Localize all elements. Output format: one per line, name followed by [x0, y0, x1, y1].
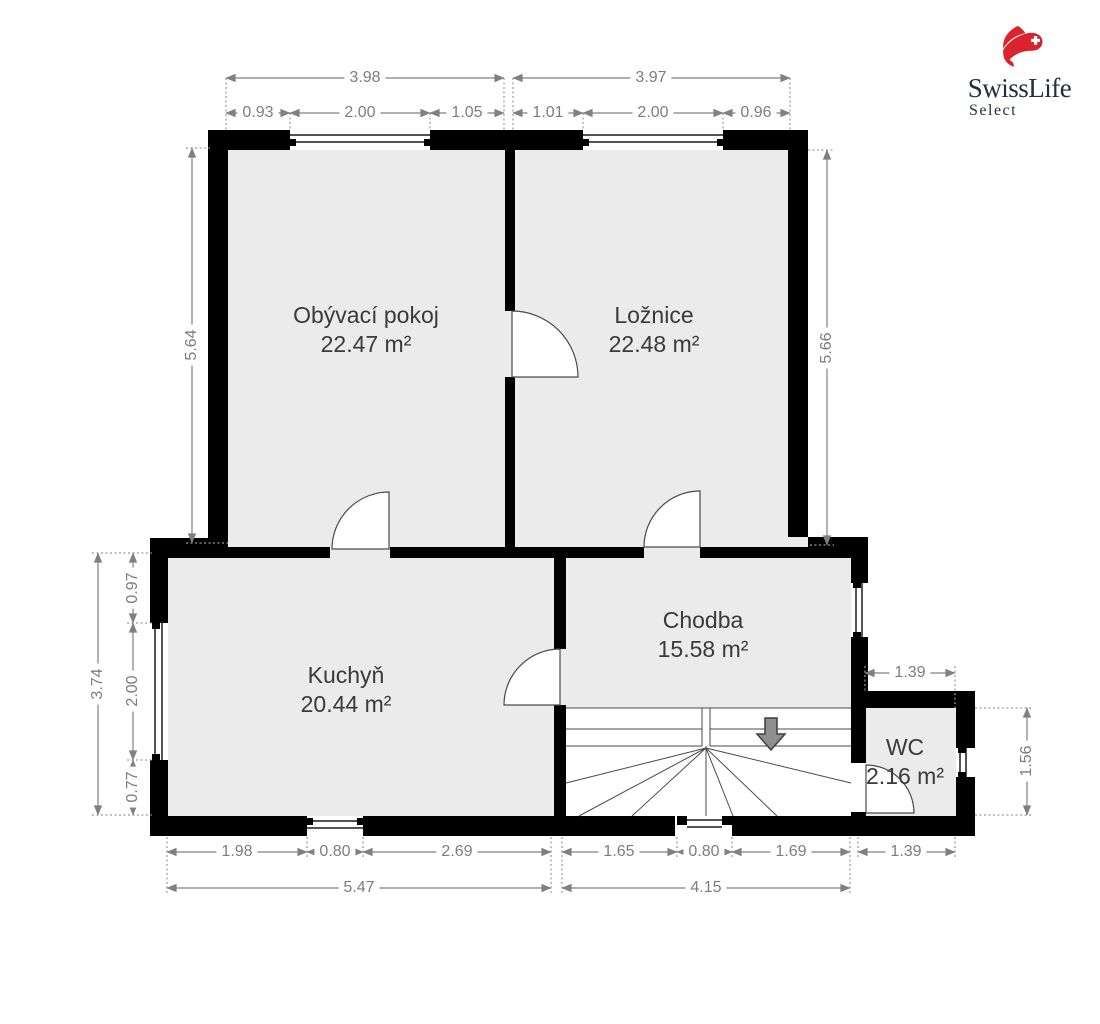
room-name: Kuchyň [301, 661, 392, 690]
room-label-wc: WC 2.16 m² [866, 733, 944, 791]
dim-label: 0.80 [683, 843, 724, 861]
dim-label: 1.69 [770, 843, 811, 861]
logo-title: SwissLife [962, 74, 1077, 102]
window-icon [307, 816, 363, 836]
room-area: 22.48 m² [609, 330, 700, 359]
dim-label: 1.39 [889, 664, 930, 682]
dim-label: 2.00 [339, 104, 380, 122]
dim-label: 1.65 [598, 843, 639, 861]
room-area: 2.16 m² [866, 762, 944, 791]
dim-label: 0.77 [124, 766, 142, 807]
window-icon [290, 130, 430, 150]
dim-label: 3.97 [630, 69, 671, 87]
dim-label: 0.80 [314, 843, 355, 861]
room-name: WC [866, 733, 944, 762]
dim-label: 0.96 [735, 104, 776, 122]
room-label-bedroom: Ložnice 22.48 m² [609, 301, 700, 359]
room-area: 20.44 m² [301, 690, 392, 719]
dim-label: 5.64 [183, 324, 201, 365]
dim-label: 0.97 [124, 567, 142, 608]
dim-label: 1.98 [216, 843, 257, 861]
window-icon [583, 130, 723, 150]
room-label-kitchen: Kuchyň 20.44 m² [301, 661, 392, 719]
dim-label: 1.05 [446, 104, 487, 122]
window-icon [956, 748, 975, 777]
room-label-living: Obývací pokoj 22.47 m² [293, 301, 439, 359]
floorplan-drawing [0, 0, 1100, 1024]
entrance-door [675, 816, 732, 836]
dim-label: 3.98 [344, 69, 385, 87]
dim-label: 2.69 [436, 843, 477, 861]
dim-label: 5.66 [818, 327, 836, 368]
dim-label: 3.74 [89, 663, 107, 704]
room-name: Chodba [658, 606, 749, 635]
dim-label: 1.01 [527, 104, 568, 122]
room-name: Ložnice [609, 301, 700, 330]
dim-label: 4.15 [685, 879, 726, 897]
dim-label: 2.00 [124, 670, 142, 711]
dim-label: 5.47 [338, 879, 379, 897]
swisslife-logo: SwissLife Select [962, 20, 1077, 120]
room-area: 15.58 m² [658, 635, 749, 664]
window-icon [851, 583, 868, 637]
window-icon [150, 623, 168, 760]
dim-label: 2.00 [632, 104, 673, 122]
logo-subtitle: Select [962, 102, 1077, 120]
swisslife-flag-icon [996, 20, 1044, 72]
dim-label: 0.93 [237, 104, 278, 122]
room-name: Obývací pokoj [293, 301, 439, 330]
room-label-hall: Chodba 15.58 m² [658, 606, 749, 664]
dim-label: 1.56 [1018, 740, 1036, 781]
room-area: 22.47 m² [293, 330, 439, 359]
floorplan-page: Obývací pokoj 22.47 m² Ložnice 22.48 m² … [0, 0, 1100, 1024]
dim-label: 1.39 [885, 843, 926, 861]
